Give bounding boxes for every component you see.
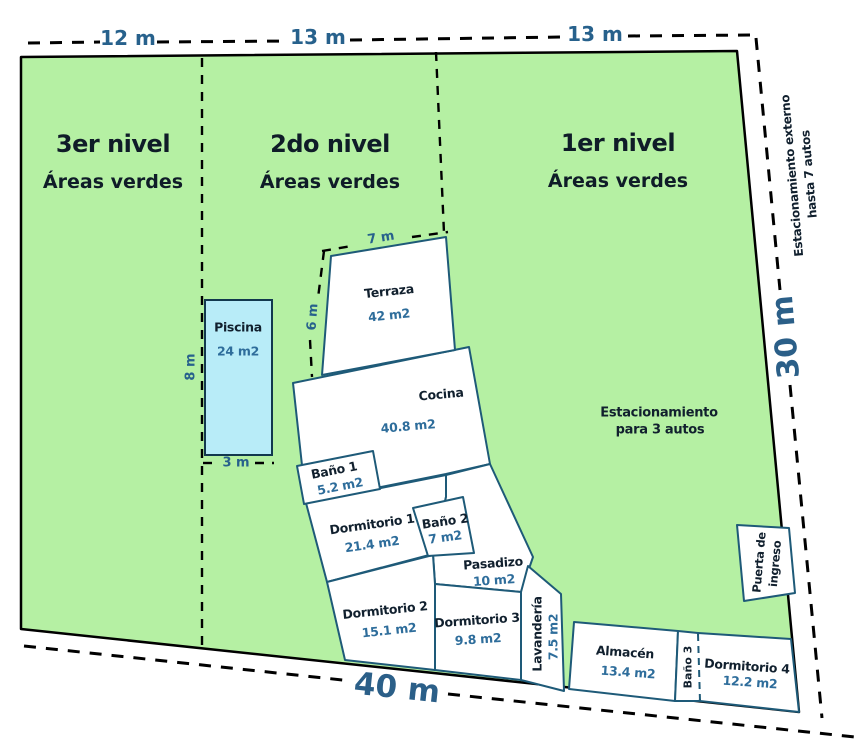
level2-subtitle: Áreas verdes: [260, 170, 400, 193]
dim-pool-8m: 8 m: [184, 353, 199, 380]
dim-top-13m-a: 13 m: [290, 25, 346, 49]
dim-pool-3m: 3 m: [222, 456, 249, 471]
dim-bottom-40m: 40 m: [352, 666, 442, 711]
terrain-plan-canvas: 12 m 13 m 13 m 3er nivel Áreas verdes 2d…: [0, 0, 861, 753]
room-lavanderia-area: 7.5 m2: [546, 614, 561, 660]
pool-label: Piscina: [214, 320, 262, 335]
bano3-dorm4-border-erase: [698, 635, 700, 699]
room-almacen-outline: [569, 622, 678, 701]
level1-title: 1er nivel: [561, 129, 675, 157]
external-parking-note: Estacionamiento externo hasta 7 autos: [778, 93, 823, 257]
dim-top-12m: 12 m: [100, 26, 156, 50]
level2-title: 2do nivel: [270, 130, 390, 158]
dim-top-13m-b: 13 m: [567, 22, 623, 46]
dim-terrace-6m: 6 m: [305, 303, 322, 331]
svg-text:para 3 autos: para 3 autos: [616, 423, 705, 438]
room-pasadizo-area: 10 m2: [473, 571, 516, 589]
pool-area: 24 m2: [217, 344, 259, 359]
room-lavanderia-label: Lavandería: [530, 596, 545, 671]
room-bano3-label: Baño 3: [682, 646, 695, 689]
level3-subtitle: Áreas verdes: [43, 170, 183, 193]
room-terraza-outline: [322, 237, 455, 375]
level1-subtitle: Áreas verdes: [548, 169, 688, 192]
dim-right-30m: 30 m: [765, 294, 807, 380]
floor-plan-svg: 12 m 13 m 13 m 3er nivel Áreas verdes 2d…: [0, 0, 861, 753]
level3-title: 3er nivel: [56, 130, 170, 158]
svg-text:Estacionamiento: Estacionamiento: [600, 406, 718, 421]
